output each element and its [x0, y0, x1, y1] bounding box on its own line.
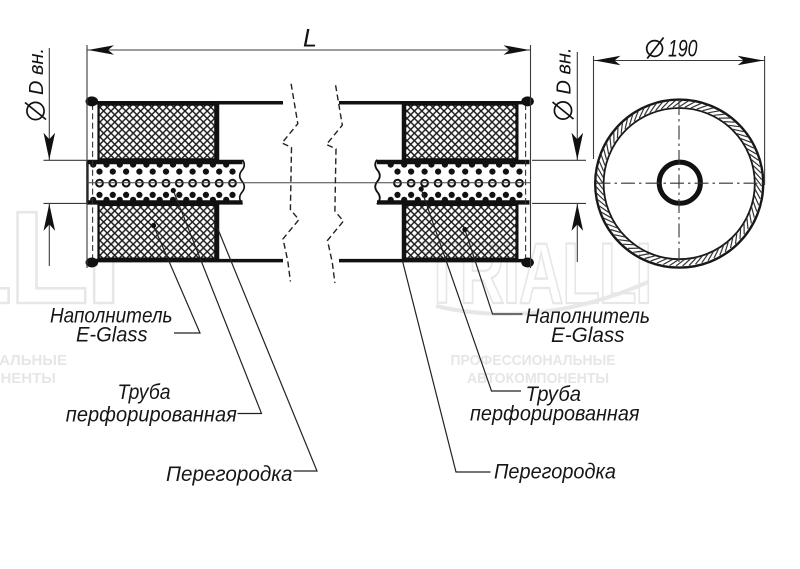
svg-text:ПРОФЕССИОНАЛЬНЫЕ: ПРОФЕССИОНАЛЬНЫЕ [0, 352, 67, 369]
svg-text:L: L [303, 25, 317, 53]
svg-text:E-Glass: E-Glass [76, 323, 148, 347]
svg-text:перфорированная: перфорированная [470, 402, 640, 426]
svg-text:D вн.: D вн. [554, 47, 576, 94]
svg-text:АВТОКОМПОНЕНТЫ: АВТОКОМПОНЕНТЫ [0, 370, 56, 387]
svg-text:Перегородка: Перегородка [166, 462, 293, 486]
svg-text:D вн.: D вн. [26, 48, 48, 95]
svg-text:Перегородка: Перегородка [494, 460, 616, 484]
svg-text:перфорированная: перфорированная [66, 403, 237, 427]
svg-text:E-Glass: E-Glass [551, 323, 625, 347]
svg-text:190: 190 [668, 36, 698, 63]
svg-text:Труба: Труба [118, 380, 171, 404]
svg-text:ПРОФЕССИОНАЛЬНЫЕ: ПРОФЕССИОНАЛЬНЫЕ [451, 352, 616, 369]
